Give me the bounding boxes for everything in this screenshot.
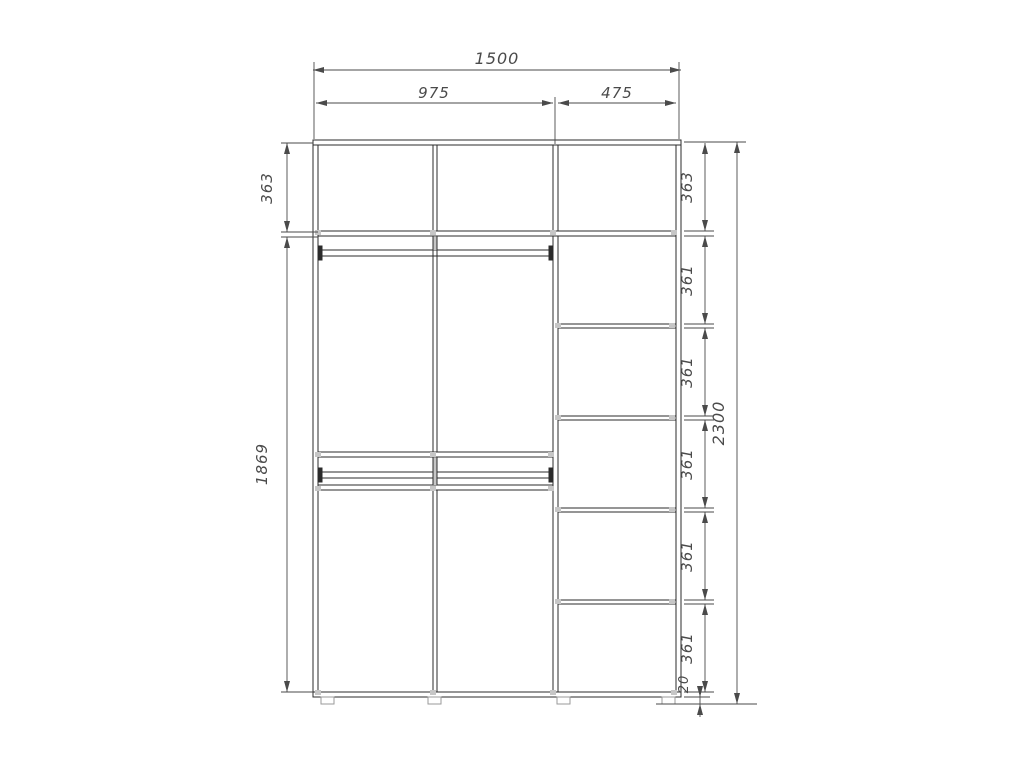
dim-label-right-6: 361 — [678, 632, 696, 664]
foot — [557, 697, 570, 704]
connector-mark — [671, 230, 677, 235]
dim-label-width-right: 475 — [601, 84, 633, 102]
arrow-icon — [702, 681, 708, 692]
right-shelf-3 — [558, 508, 676, 512]
rod-bracket-lower-left — [319, 468, 322, 482]
connector-mark — [555, 599, 561, 604]
connector-mark — [669, 323, 675, 328]
arrow-icon — [702, 236, 708, 247]
dim-label-height-total: 2300 — [709, 401, 728, 446]
connector-mark — [669, 599, 675, 604]
arrow-icon — [702, 405, 708, 416]
arrow-icon — [702, 497, 708, 508]
arrow-icon — [702, 512, 708, 523]
bottom-panel — [313, 692, 681, 697]
arrow-icon — [702, 328, 708, 339]
connector-mark — [555, 415, 561, 420]
connector-mark — [315, 690, 321, 695]
dim-label-right-2: 361 — [678, 264, 696, 296]
dim-label-right-5: 361 — [678, 540, 696, 572]
connector-mark — [550, 230, 556, 235]
arrow-icon — [665, 100, 676, 106]
dim-label-right-4: 361 — [678, 448, 696, 480]
rod-bracket-lower-right — [549, 468, 552, 482]
connector-mark — [669, 415, 675, 420]
arrow-icon — [284, 237, 290, 248]
connector-mark — [555, 507, 561, 512]
connector-mark — [315, 452, 321, 457]
wardrobe-technical-drawing: 1500975475363186936336136136136136120230… — [0, 0, 1024, 768]
arrow-icon — [284, 221, 290, 232]
right-shelf-1 — [558, 324, 676, 328]
arrow-icon — [702, 313, 708, 324]
dim-label-left-top: 363 — [258, 172, 276, 204]
divider-cross-mark — [434, 458, 437, 485]
rod-bracket-upper-left — [319, 246, 322, 260]
right-shelf-4 — [558, 600, 676, 604]
dim-label-plinth: 20 — [677, 675, 692, 694]
dim-label-right-3: 361 — [678, 356, 696, 388]
divider-cross-mark — [434, 237, 437, 250]
arrow-icon — [702, 420, 708, 431]
connector-mark — [548, 486, 554, 491]
arrow-icon — [702, 143, 708, 154]
drawing-canvas: 1500975475363186936336136136136136120230… — [0, 0, 1024, 768]
connector-mark — [315, 486, 321, 491]
arrow-icon — [734, 142, 740, 153]
arrow-icon — [558, 100, 569, 106]
arrow-icon — [542, 100, 553, 106]
arrow-icon — [316, 100, 327, 106]
dim-label-left-lower: 1869 — [253, 443, 271, 485]
dim-label-width-total: 1500 — [475, 49, 520, 68]
connector-mark — [669, 507, 675, 512]
arrow-icon — [284, 681, 290, 692]
arrow-icon — [702, 220, 708, 231]
connector-mark — [550, 690, 556, 695]
left-section-divider — [433, 145, 437, 692]
dim-label-right-1: 363 — [678, 171, 696, 203]
rod-bracket-upper-right — [549, 246, 552, 260]
arrow-icon — [702, 604, 708, 615]
arrow-icon — [734, 693, 740, 704]
arrow-icon — [697, 704, 703, 715]
connector-mark — [430, 486, 436, 491]
arrow-icon — [284, 143, 290, 154]
arrow-icon — [702, 589, 708, 600]
top-panel — [313, 140, 681, 145]
connector-mark — [548, 452, 554, 457]
foot — [321, 697, 334, 704]
left-side-panel — [313, 140, 318, 697]
connector-mark — [315, 230, 321, 235]
connector-mark — [430, 452, 436, 457]
right-shelf-2 — [558, 416, 676, 420]
foot — [428, 697, 441, 704]
top-shelf — [318, 231, 676, 236]
right-side-panel — [676, 140, 681, 697]
connector-mark — [430, 690, 436, 695]
foot — [662, 697, 675, 704]
connector-mark — [430, 230, 436, 235]
arrow-icon — [697, 686, 703, 697]
connector-mark — [555, 323, 561, 328]
arrow-icon — [313, 67, 324, 73]
dim-label-width-left: 975 — [418, 84, 450, 102]
